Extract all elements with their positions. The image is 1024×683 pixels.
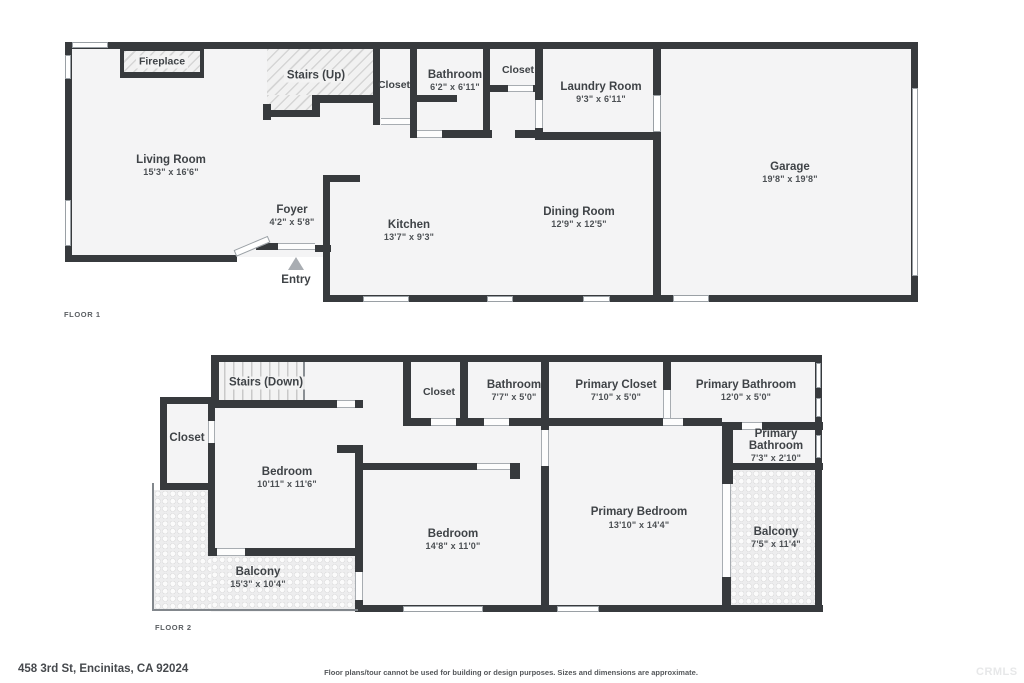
- stairs-up-hatch: [267, 95, 312, 110]
- door-opening: [663, 418, 683, 426]
- window: [816, 398, 821, 417]
- window: [583, 296, 610, 302]
- crmls-watermark: CRMLS: [976, 666, 1018, 678]
- door-opening: [208, 421, 215, 443]
- door-opening: [278, 243, 315, 250]
- door-opening: [355, 572, 363, 600]
- window: [557, 606, 599, 612]
- room-label-primary-bathroom: Primary Bathroom: [696, 379, 796, 391]
- window: [816, 363, 821, 388]
- room-dims-bathroom-f2: 7'7" x 5'0": [491, 392, 536, 402]
- room-dims-living-room: 15'3" x 16'6": [143, 167, 198, 177]
- room-label-primary-bedroom: Primary Bedroom: [591, 506, 688, 518]
- room-label-kitchen: Kitchen: [388, 219, 430, 231]
- disclaimer-text: Floor plans/tour cannot be used for buil…: [324, 668, 698, 677]
- room-label-bedroom-left: Bedroom: [262, 466, 312, 478]
- balcony-railing: [152, 483, 154, 611]
- door-opening: [417, 130, 442, 138]
- room-label-garage: Garage: [770, 161, 810, 173]
- wall-segment: [208, 443, 215, 556]
- wall-segment: [815, 355, 822, 612]
- wall-segment: [728, 463, 823, 470]
- room-label-laundry: Laundry Room: [560, 81, 641, 93]
- wall-segment: [663, 355, 671, 390]
- door-opening: [535, 100, 543, 128]
- floor1-tag: FLOOR 1: [64, 310, 101, 319]
- wall-segment: [323, 295, 918, 302]
- room-dims-bedroom-mid: 14'8" x 11'0": [426, 541, 481, 551]
- balcony-railing: [152, 609, 358, 611]
- wall-segment: [653, 132, 661, 302]
- wall-segment: [541, 466, 549, 612]
- wall-segment: [355, 400, 363, 408]
- room-label-bathroom-f1: Bathroom: [428, 69, 482, 81]
- room-label-dining: Dining Room: [543, 206, 615, 218]
- room-label-closet-hall-f2: Closet: [423, 386, 455, 398]
- window: [487, 296, 513, 302]
- wall-segment: [323, 175, 330, 302]
- wall-segment: [417, 95, 457, 102]
- door-opening: [337, 400, 355, 408]
- window: [72, 42, 108, 48]
- wall-segment: [653, 42, 661, 95]
- wall-segment: [160, 483, 212, 490]
- room-dims-balcony-right: 7'5" x 11'4": [751, 539, 801, 549]
- door-opening: [508, 85, 533, 92]
- door-opening: [381, 118, 410, 125]
- room-dims-garage: 19'8" x 19'8": [762, 174, 817, 184]
- room-label-closet-left: Closet: [169, 432, 204, 444]
- wall-segment: [211, 400, 338, 408]
- room-dims-primary-bathroom-small: 7'3" x 2'10": [751, 453, 801, 463]
- wall-segment: [263, 104, 271, 120]
- floor2-tag: FLOOR 2: [155, 623, 192, 632]
- window: [403, 606, 483, 612]
- wall-segment: [483, 85, 508, 92]
- room-label-foyer: Foyer: [276, 204, 307, 216]
- wall-segment: [683, 418, 722, 426]
- room-label-entry: Entry: [281, 274, 310, 286]
- room-label-balcony-right: Balcony: [754, 526, 799, 538]
- listing-address: 458 3rd St, Encinitas, CA 92024: [18, 663, 188, 675]
- room-dims-primary-bedroom: 13'10" x 14'4": [609, 520, 670, 530]
- room-label-primary-bathroom-small-line1: Primary: [755, 428, 798, 440]
- room-dims-foyer: 4'2" x 5'8": [269, 217, 314, 227]
- room-dims-kitchen: 13'7" x 9'3": [384, 232, 434, 242]
- wall-segment: [403, 418, 431, 426]
- door-opening: [431, 418, 456, 426]
- door-opening: [663, 390, 671, 418]
- window: [673, 295, 709, 302]
- wall-segment: [315, 95, 373, 103]
- window: [653, 95, 661, 132]
- room-label-stairs-down: Stairs (Down): [226, 377, 306, 390]
- wall-segment: [410, 42, 417, 138]
- wall-segment: [160, 397, 215, 404]
- wall-segment: [533, 85, 543, 92]
- wall-segment: [733, 422, 742, 430]
- wall-segment: [403, 355, 411, 426]
- room-label-primary-bathroom-small-line2: Bathroom: [749, 440, 803, 452]
- wall-segment: [315, 245, 331, 252]
- floor-plan-canvas: Living Room 15'3" x 16'6" Fireplace Stai…: [0, 0, 1024, 683]
- room-dims-laundry: 9'3" x 6'11": [576, 94, 626, 104]
- room-dims-bathroom-f1: 6'2" x 6'11": [430, 82, 480, 92]
- wall-segment: [509, 418, 663, 426]
- wall-segment: [160, 397, 167, 490]
- wall-segment: [323, 175, 360, 182]
- wall-segment: [510, 463, 520, 479]
- wall-segment: [211, 355, 822, 362]
- window: [816, 435, 821, 458]
- door-opening: [477, 463, 510, 470]
- window: [912, 88, 918, 276]
- room-label-stairs-up: Stairs (Up): [284, 70, 348, 83]
- door-opening: [541, 430, 549, 466]
- wall-segment: [442, 130, 492, 138]
- room-dims-primary-closet: 7'10" x 5'0": [591, 392, 641, 402]
- window: [65, 200, 71, 246]
- door-opening: [217, 548, 245, 556]
- wall-segment: [456, 418, 484, 426]
- entry-arrow-icon: [288, 257, 304, 270]
- wall-segment: [535, 132, 661, 140]
- balcony-left-pavers: [154, 490, 211, 610]
- door-opening: [722, 484, 731, 577]
- room-label-fireplace: Fireplace: [136, 56, 188, 69]
- wall-segment: [722, 422, 733, 484]
- room-dims-bedroom-left: 10'11" x 11'6": [257, 479, 317, 489]
- room-label-closet-hall-f1: Closet: [378, 79, 410, 91]
- wall-segment: [460, 355, 468, 426]
- wall-segment: [65, 255, 237, 262]
- window: [65, 55, 71, 79]
- room-label-bathroom-f2: Bathroom: [487, 379, 541, 391]
- room-dims-balcony-left: 15'3" x 10'4": [230, 579, 285, 589]
- wall-segment: [65, 42, 918, 49]
- room-label-living-room: Living Room: [136, 154, 206, 166]
- room-label-closet-laundry: Closet: [502, 64, 534, 76]
- room-dims-dining: 12'9" x 12'5": [551, 219, 606, 229]
- wall-segment: [722, 577, 731, 612]
- room-label-bedroom-mid: Bedroom: [428, 528, 478, 540]
- room-dims-primary-bathroom: 12'0" x 5'0": [721, 392, 771, 402]
- door-opening: [484, 418, 509, 426]
- window: [363, 296, 409, 302]
- room-label-balcony-left: Balcony: [236, 566, 281, 578]
- wall-segment: [263, 110, 320, 117]
- wall-segment: [362, 463, 477, 470]
- room-label-primary-closet: Primary Closet: [575, 379, 656, 391]
